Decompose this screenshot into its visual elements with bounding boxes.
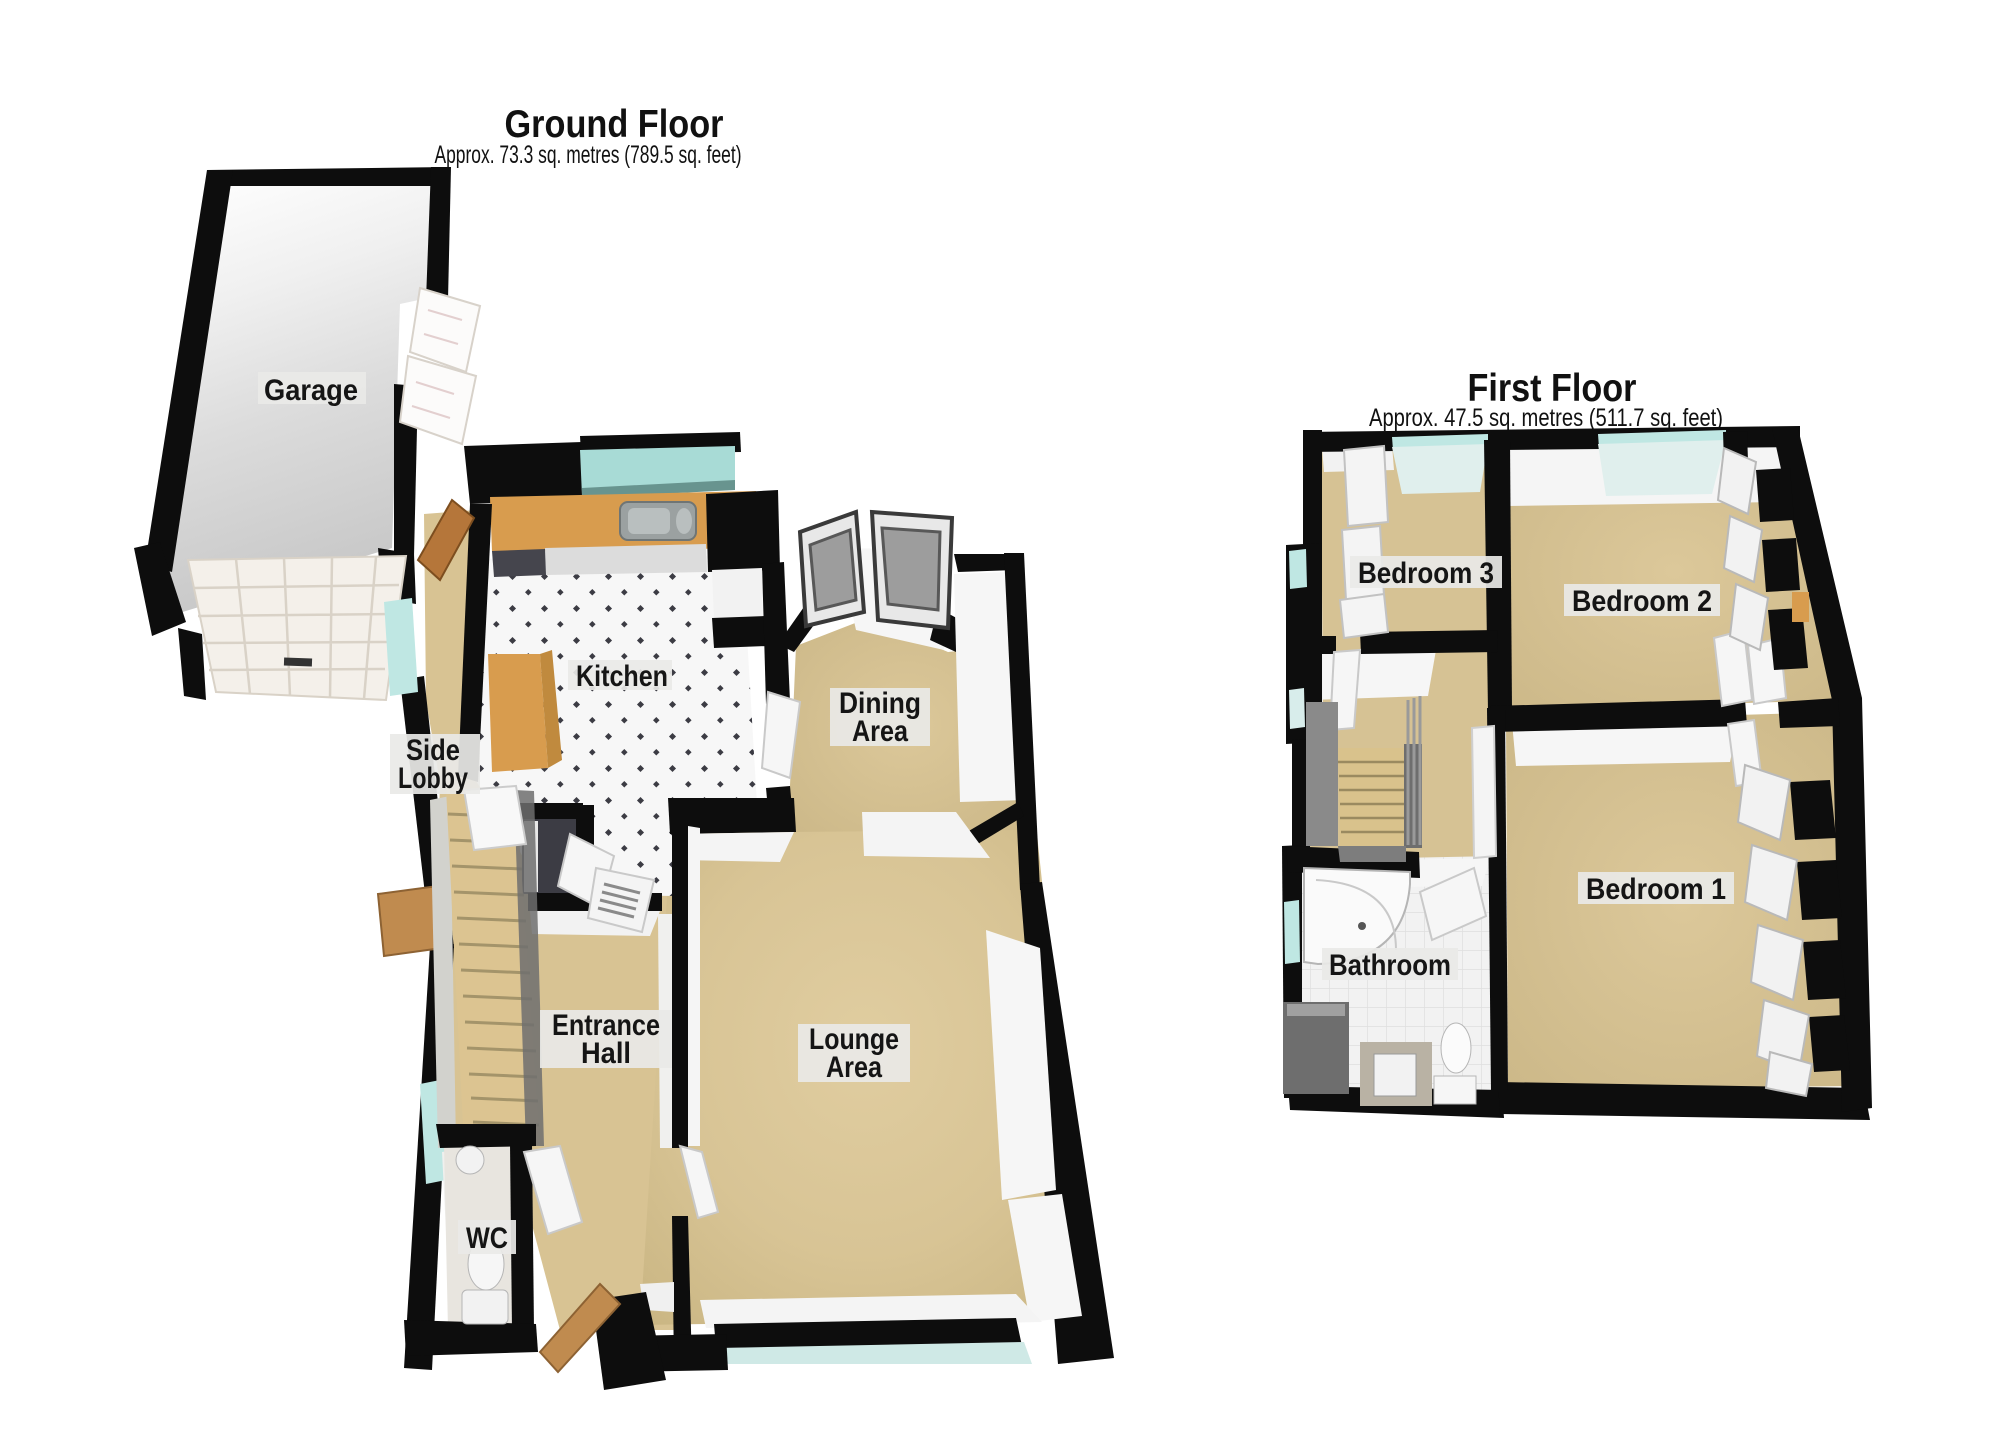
svg-text:Kitchen: Kitchen <box>576 660 668 693</box>
svg-text:Hall: Hall <box>581 1037 631 1070</box>
svg-text:Garage: Garage <box>264 374 358 407</box>
svg-text:Ground Floor: Ground Floor <box>505 103 724 146</box>
svg-text:Bedroom 3: Bedroom 3 <box>1358 557 1494 590</box>
svg-text:Area: Area <box>852 715 908 748</box>
svg-text:Bedroom 2: Bedroom 2 <box>1572 585 1712 618</box>
svg-text:Bedroom 1: Bedroom 1 <box>1586 873 1726 906</box>
svg-text:Bathroom: Bathroom <box>1329 949 1451 982</box>
svg-text:Approx. 73.3 sq. metres (789.5: Approx. 73.3 sq. metres (789.5 sq. feet) <box>435 141 742 169</box>
svg-text:Lobby: Lobby <box>398 762 468 795</box>
svg-text:WC: WC <box>466 1222 508 1255</box>
svg-text:Area: Area <box>826 1051 882 1084</box>
